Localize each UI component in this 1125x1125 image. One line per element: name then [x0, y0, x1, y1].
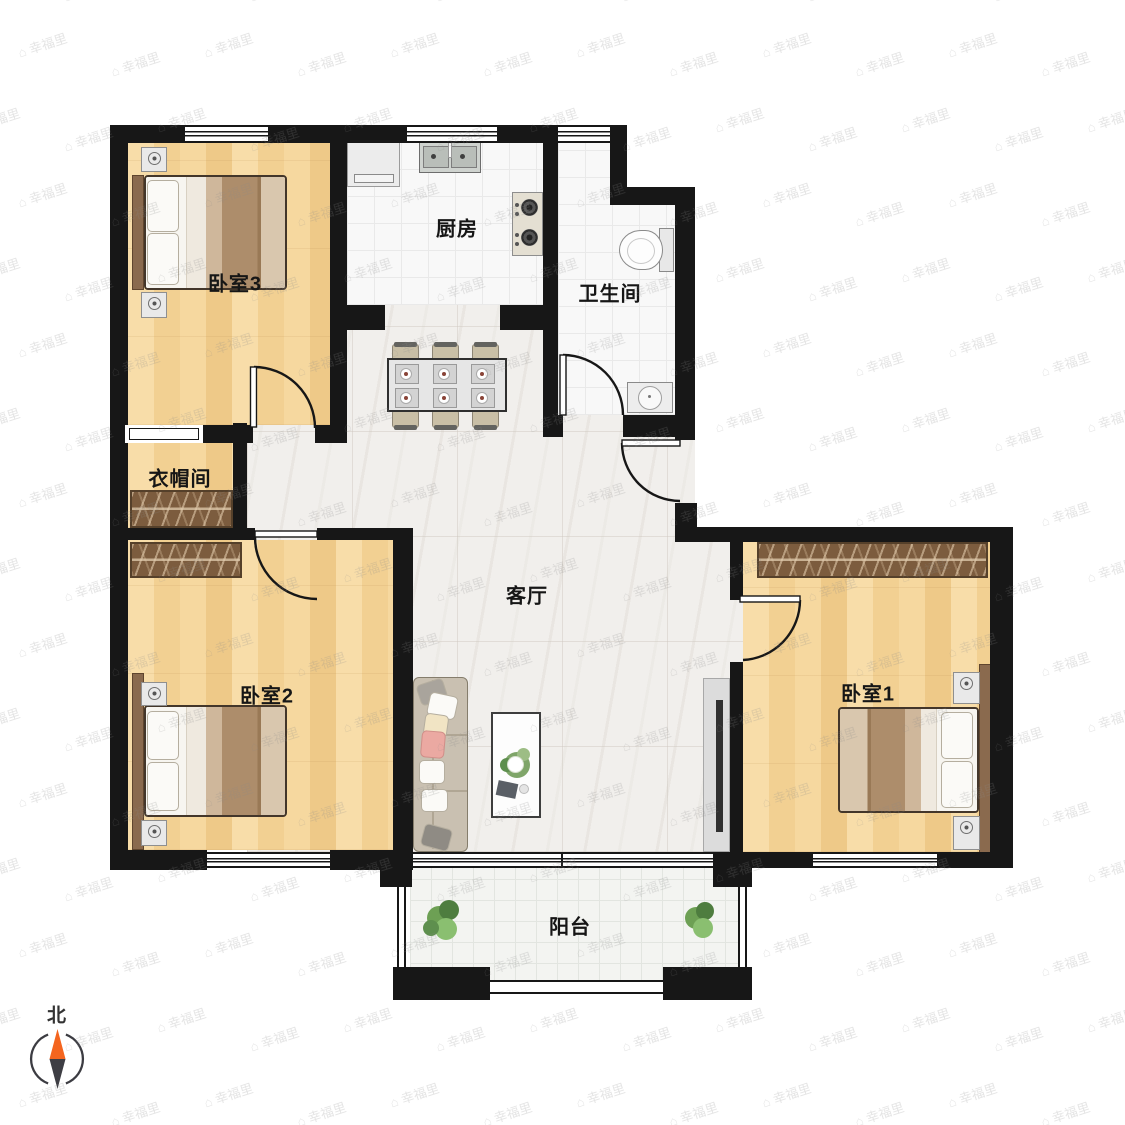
room-label-bedroom3: 卧室3 — [208, 268, 262, 297]
floor-plan: 卧室3 厨房 卫生间 衣帽间 客厅 卧室2 卧室1 阳台 北 ⌂ 幸福里⌂ 幸福… — [0, 0, 1125, 1125]
room-label-cloakroom: 衣帽间 — [149, 463, 212, 492]
compass-icon — [31, 1029, 83, 1089]
door-arcs-layer — [0, 0, 1125, 1125]
room-label-balcony: 阳台 — [549, 911, 591, 940]
room-label-living: 客厅 — [506, 580, 548, 609]
room-label-bedroom2: 卧室2 — [240, 680, 294, 709]
door-arc-bedroom3 — [254, 367, 315, 428]
door-arc-bedroom2 — [255, 537, 317, 599]
room-label-bedroom1: 卧室1 — [841, 678, 895, 707]
door-panel — [255, 531, 317, 537]
door-arc-bedroom1 — [743, 600, 800, 660]
door-panel — [251, 367, 257, 427]
door-arc-entrance — [622, 443, 680, 501]
compass-south-tip — [50, 1059, 66, 1089]
room-label-kitchen: 厨房 — [436, 213, 478, 242]
door-panel — [740, 596, 800, 602]
compass-north-tip — [50, 1029, 66, 1059]
compass-north-label: 北 — [47, 1001, 67, 1028]
room-label-bathroom: 卫生间 — [579, 278, 642, 307]
door-panel — [622, 440, 680, 446]
door-arc-bathroom — [563, 355, 623, 415]
door-panel — [560, 355, 566, 415]
